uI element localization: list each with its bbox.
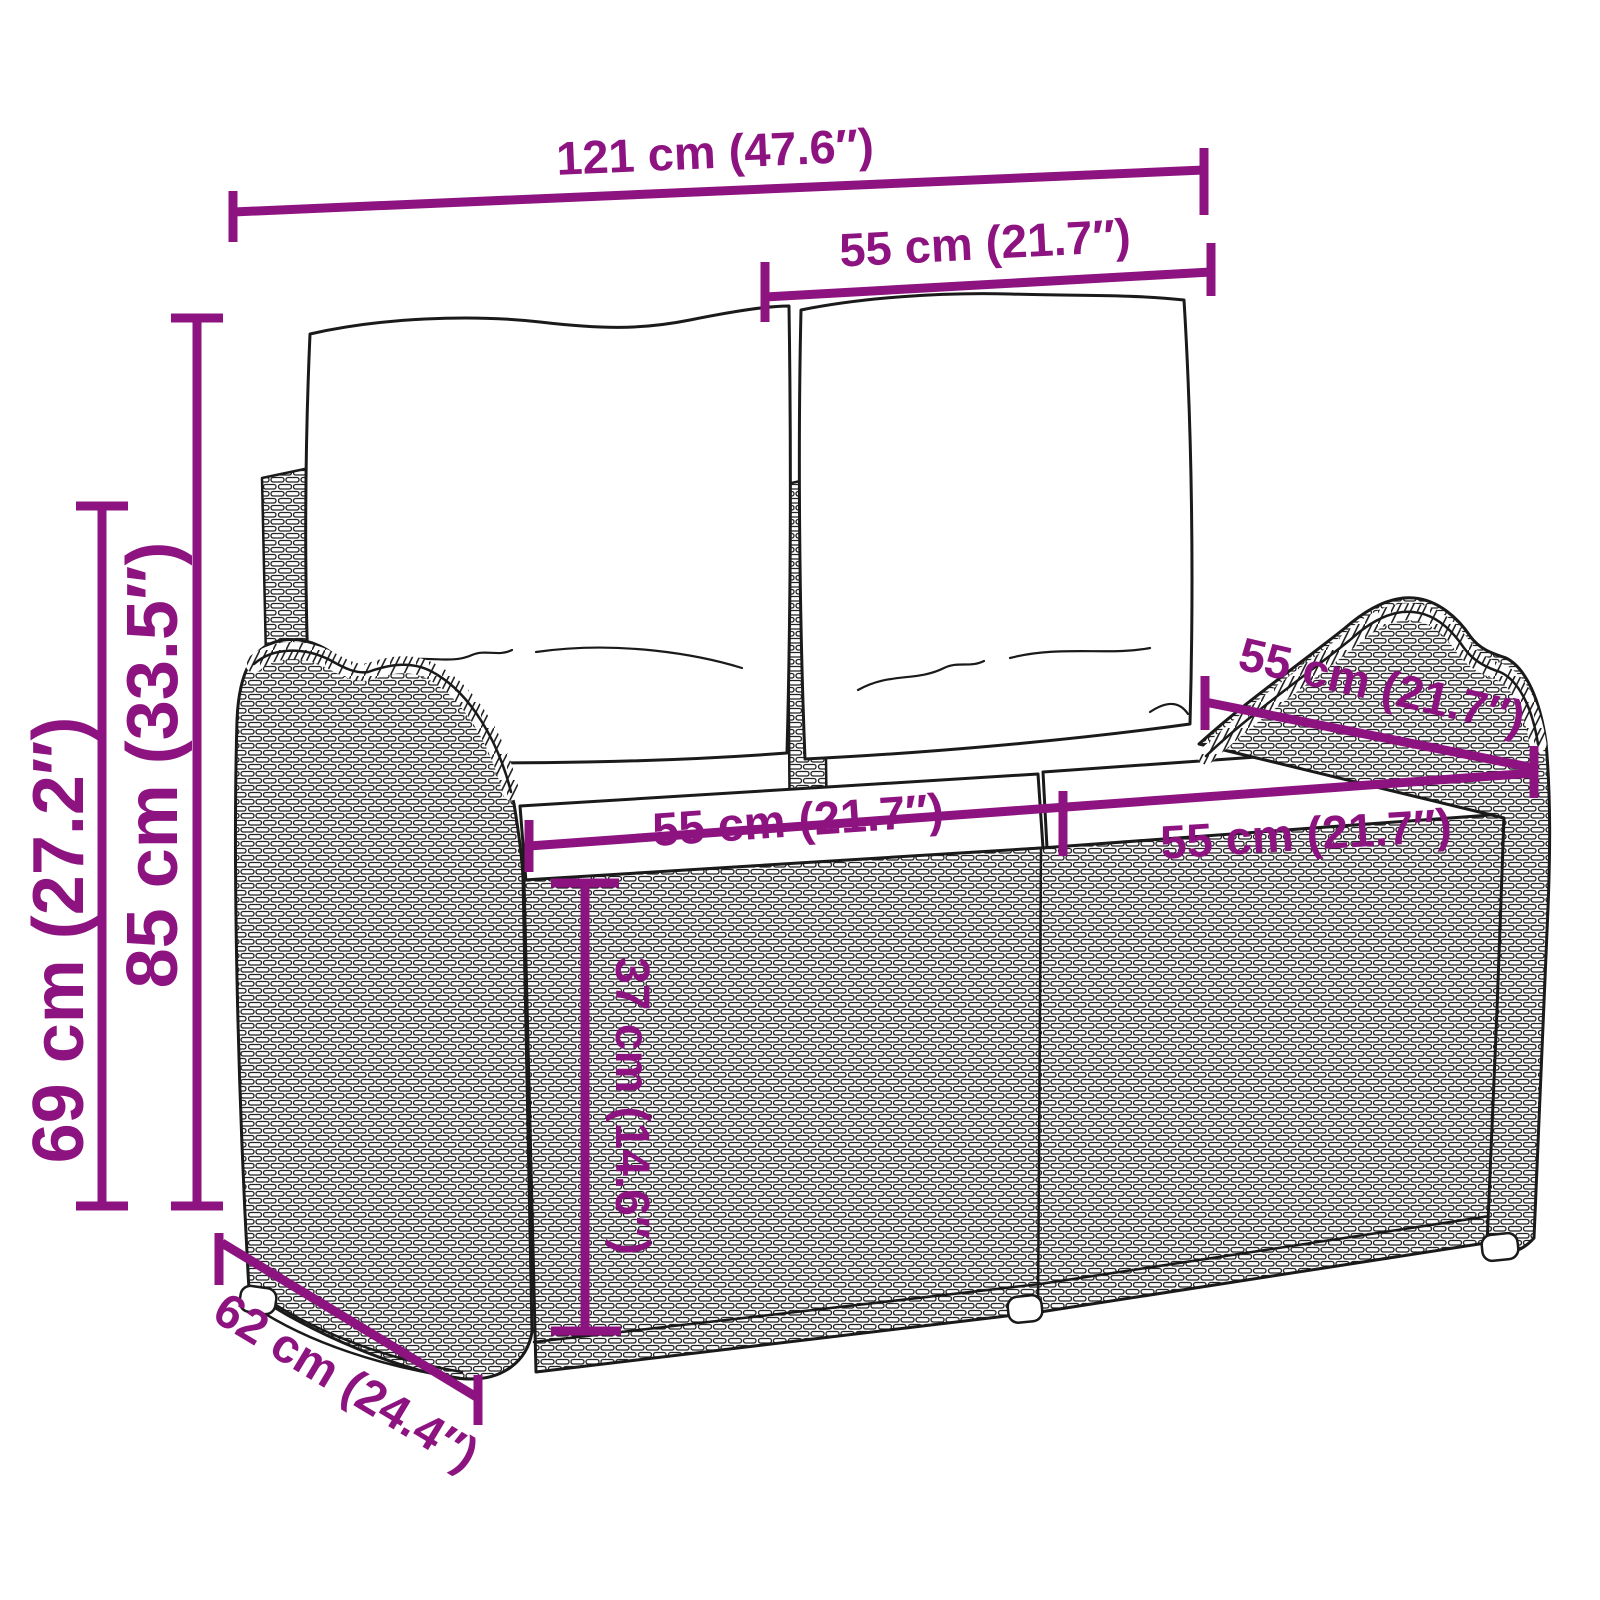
foot-right [1481,1232,1520,1262]
bench-diagram-canvas: 121 cm (47.6″) 55 cm (21.7″) 85 cm (33.5… [0,0,1600,1600]
foot-center [1007,1294,1044,1323]
dim-overall-height-label: 85 cm (33.5″) [113,542,193,989]
back-cushion-right [799,294,1192,759]
product-dimension-diagram: 121 cm (47.6″) 55 cm (21.7″) 85 cm (33.5… [0,0,1600,1600]
dim-back-cushion-width-label: 55 cm (21.7″) [838,208,1132,276]
dim-overall-width-label: 121 cm (47.6″) [555,118,875,185]
dim-armrest-height-label: 69 cm (27.2″) [19,717,99,1164]
dim-seat-height-label: 37 cm (14.6″) [605,957,658,1255]
left-armrest [236,640,533,1379]
front-panel [524,814,1504,1372]
